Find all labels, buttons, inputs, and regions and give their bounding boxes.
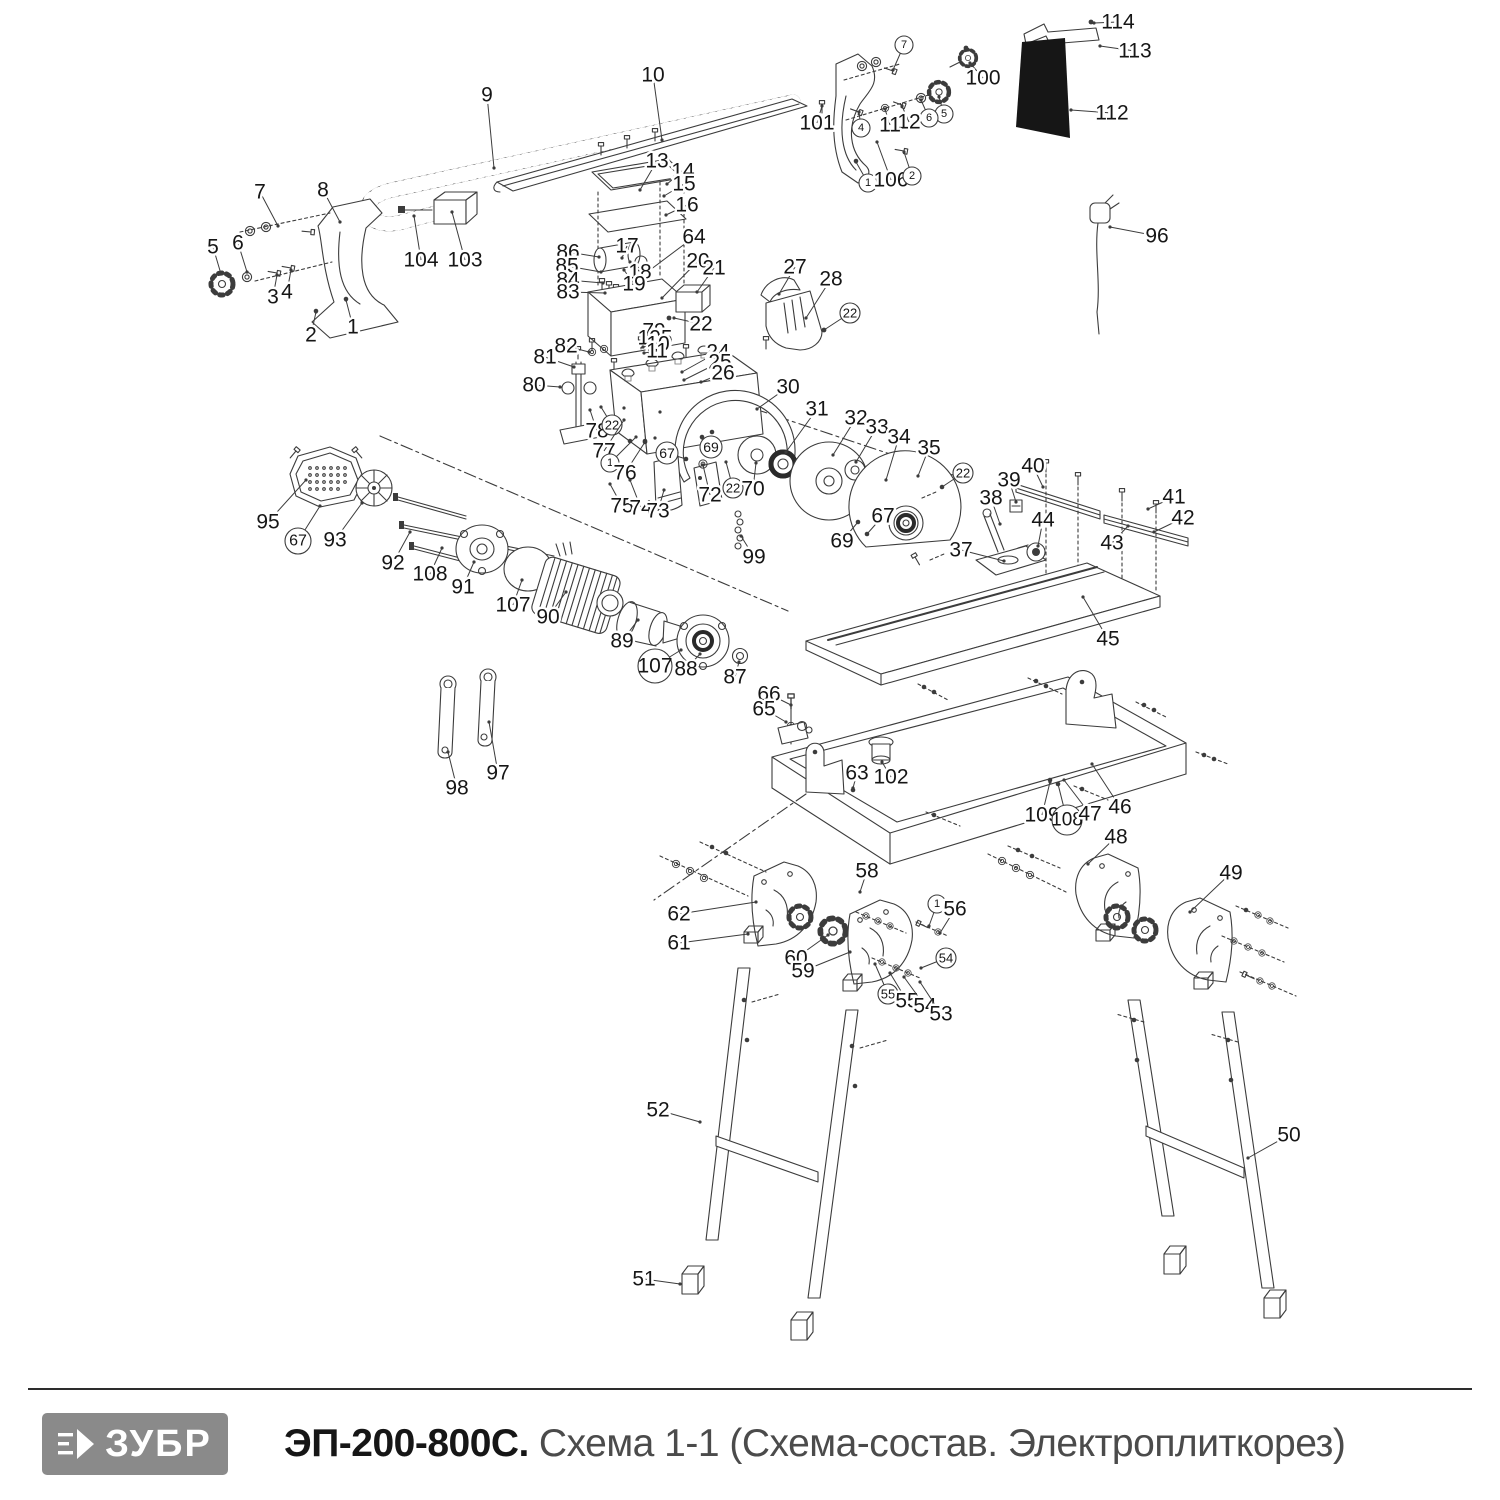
callout-92: 92: [381, 530, 411, 574]
svg-text:70: 70: [741, 478, 764, 501]
small-box-21: [676, 285, 710, 312]
callout-98: 98: [445, 750, 468, 799]
svg-text:69: 69: [703, 439, 719, 455]
switch-guard: [761, 278, 826, 350]
svg-text:1: 1: [347, 316, 359, 339]
svg-text:42: 42: [1171, 507, 1194, 530]
svg-text:81: 81: [533, 346, 556, 369]
footer-divider: [28, 1388, 1472, 1390]
callout-112: 112: [1069, 102, 1128, 125]
page-title: ЭП-200-800С.Схема 1-1 (Схема-состав. Эле…: [284, 1422, 1345, 1466]
svg-text:10: 10: [641, 64, 664, 87]
callout-80: 80: [522, 374, 561, 397]
svg-text:21: 21: [702, 257, 725, 280]
svg-text:46: 46: [1108, 796, 1131, 819]
svg-text:17: 17: [615, 235, 638, 258]
leg-pivot-brackets: [660, 842, 1296, 996]
drop-chain: [735, 511, 743, 549]
svg-text:87: 87: [723, 666, 746, 689]
callout-2: 2: [305, 310, 317, 346]
svg-text:43: 43: [1100, 532, 1123, 555]
svg-text:30: 30: [776, 376, 799, 399]
svg-text:65: 65: [752, 698, 775, 721]
svg-text:26: 26: [711, 362, 734, 385]
zubr-logo-icon: [58, 1427, 96, 1461]
svg-text:32: 32: [844, 407, 867, 430]
svg-text:89: 89: [610, 630, 633, 653]
svg-text:33: 33: [865, 416, 888, 439]
leg-frame-left: [706, 968, 888, 1298]
svg-text:108: 108: [412, 563, 447, 586]
svg-text:27: 27: [783, 256, 806, 279]
rubber-feet: [682, 1246, 1286, 1340]
schema-subtitle: Схема 1-1 (Схема-состав. Электроплиткоре…: [539, 1422, 1346, 1465]
callout-99: 99: [739, 534, 765, 568]
callout-82: 82: [554, 335, 590, 358]
svg-text:49: 49: [1219, 862, 1242, 885]
svg-text:31: 31: [805, 398, 828, 421]
callout-56: 56: [938, 898, 966, 935]
callout-5: 5: [207, 236, 222, 276]
callout-40: 40: [1021, 455, 1044, 489]
svg-text:47: 47: [1078, 803, 1101, 826]
svg-text:5: 5: [207, 236, 219, 259]
svg-text:28: 28: [819, 268, 842, 291]
callout-43: 43: [1100, 524, 1129, 554]
brand-name: ЗУБР: [105, 1425, 212, 1463]
callout-52: 52: [646, 1099, 701, 1124]
svg-text:1: 1: [607, 457, 613, 469]
svg-text:6: 6: [232, 232, 244, 255]
svg-text:107: 107: [637, 655, 672, 678]
lower-blade-guard: [849, 451, 961, 566]
callout-3: 3: [267, 273, 279, 308]
svg-text:73: 73: [646, 500, 669, 523]
callout-54-circled: 54: [919, 948, 956, 970]
bracket-hardware: [660, 842, 1296, 996]
svg-text:13: 13: [645, 150, 668, 173]
callout-30: 30: [755, 376, 799, 411]
svg-text:48: 48: [1104, 826, 1127, 849]
svg-text:19: 19: [622, 273, 645, 296]
svg-text:3: 3: [267, 286, 279, 309]
chassis-bracket-right: [1066, 671, 1116, 728]
callout-17: 17: [615, 235, 638, 260]
svg-text:7: 7: [254, 181, 266, 204]
svg-text:72: 72: [698, 484, 721, 507]
svg-text:106: 106: [873, 169, 908, 192]
svg-text:45: 45: [1096, 628, 1119, 651]
svg-text:11: 11: [646, 340, 668, 363]
chassis-tray: [772, 671, 1228, 864]
callout-44: 44: [1031, 509, 1055, 548]
svg-text:113: 113: [1118, 40, 1151, 63]
svg-text:35: 35: [917, 437, 940, 460]
knob-100: [950, 50, 976, 67]
callout-19: 19: [622, 268, 645, 295]
svg-text:67: 67: [871, 505, 894, 528]
callout-93: 93: [323, 501, 363, 551]
svg-text:9: 9: [481, 84, 493, 107]
callout-11: 11: [642, 340, 668, 363]
svg-text:62: 62: [667, 903, 690, 926]
callout-108: 108: [412, 546, 447, 585]
svg-text:95: 95: [256, 511, 279, 534]
svg-text:4: 4: [281, 281, 293, 304]
svg-text:63: 63: [845, 762, 868, 785]
callout-102: 102: [873, 760, 908, 788]
exploded-diagram: 9107856342110410313141516641718192021228…: [0, 0, 1500, 1388]
svg-text:1: 1: [865, 177, 871, 189]
svg-text:4: 4: [858, 122, 864, 134]
callout-69: 69: [830, 520, 859, 552]
svg-text:50: 50: [1277, 1124, 1300, 1147]
callout-106: 106: [873, 140, 908, 191]
svg-text:82: 82: [554, 335, 577, 358]
link-handles: [438, 669, 496, 758]
svg-text:2: 2: [305, 324, 317, 347]
svg-text:11: 11: [879, 114, 901, 137]
callout-9: 9: [481, 84, 495, 170]
svg-text:107: 107: [495, 594, 530, 617]
svg-text:34: 34: [887, 426, 911, 449]
svg-text:22: 22: [956, 466, 970, 481]
svg-text:15: 15: [672, 173, 695, 196]
svg-text:7: 7: [901, 39, 907, 51]
svg-text:76: 76: [613, 462, 636, 485]
svg-text:114: 114: [1101, 11, 1135, 34]
callout-88: 88: [674, 652, 701, 680]
callout-101: 101: [799, 104, 834, 134]
callout-95: 95: [256, 478, 307, 533]
svg-text:112: 112: [1095, 102, 1128, 125]
callout-22-circled: 22: [723, 460, 743, 498]
callout-62: 62: [667, 900, 757, 925]
svg-text:39: 39: [997, 469, 1020, 492]
svg-text:80: 80: [522, 374, 545, 397]
svg-text:22: 22: [689, 313, 712, 336]
leg-frame-right: [1116, 1000, 1274, 1288]
callout-4: 4: [281, 268, 293, 303]
power-plug: [1090, 195, 1119, 334]
callout-100: 100: [965, 61, 1000, 89]
callout-7-circled: 7: [891, 36, 913, 72]
zubr-logo: ЗУБР: [42, 1413, 228, 1475]
svg-text:69: 69: [830, 530, 853, 553]
callout-7: 7: [254, 181, 279, 228]
callout-61: 61: [667, 932, 749, 955]
svg-text:58: 58: [855, 860, 878, 883]
diagram-art: [211, 20, 1296, 1340]
drain-plug: [869, 737, 893, 764]
svg-text:61: 61: [667, 932, 690, 955]
svg-text:83: 83: [556, 281, 579, 304]
svg-text:102: 102: [873, 766, 908, 789]
svg-text:5: 5: [941, 108, 947, 120]
svg-text:44: 44: [1031, 509, 1055, 532]
left-bracket-assembly: [211, 199, 398, 338]
svg-text:2: 2: [909, 170, 915, 182]
callout-96: 96: [1108, 225, 1168, 248]
svg-text:6: 6: [926, 112, 932, 124]
svg-text:55: 55: [881, 987, 895, 1002]
svg-text:22: 22: [843, 306, 857, 321]
fan-cover: [288, 447, 364, 507]
callout-58: 58: [855, 860, 878, 894]
schematic-page: 9107856342110410313141516641718192021228…: [0, 0, 1500, 1500]
callout-69-circled: 69: [700, 436, 722, 458]
callout-42: 42: [1152, 507, 1194, 534]
svg-text:103: 103: [447, 249, 482, 272]
svg-text:1: 1: [934, 898, 940, 910]
callout-87: 87: [723, 660, 746, 688]
svg-text:99: 99: [742, 546, 765, 569]
footer: ЗУБР ЭП-200-800С.Схема 1-1 (Схема-состав…: [0, 1388, 1500, 1500]
svg-text:93: 93: [323, 529, 346, 552]
callout-113: 113: [1098, 40, 1151, 63]
svg-text:40: 40: [1021, 455, 1044, 478]
svg-text:98: 98: [445, 777, 468, 800]
svg-text:54: 54: [939, 951, 953, 966]
svg-text:88: 88: [674, 658, 697, 681]
svg-text:8: 8: [317, 179, 329, 202]
svg-text:97: 97: [486, 762, 509, 785]
svg-text:16: 16: [675, 194, 698, 217]
callout-76: 76: [613, 440, 646, 484]
svg-text:90: 90: [536, 606, 559, 629]
svg-text:52: 52: [646, 1099, 669, 1122]
callout-22-circled: 22: [822, 303, 860, 332]
svg-text:41: 41: [1162, 486, 1185, 509]
callout-65: 65: [752, 698, 787, 724]
svg-text:91: 91: [451, 576, 474, 599]
svg-text:92: 92: [381, 552, 404, 575]
callout-38: 38: [979, 487, 1002, 526]
callout-51: 51: [632, 1268, 681, 1291]
svg-text:53: 53: [929, 1003, 952, 1026]
callout-67-circled: 67: [285, 504, 322, 554]
svg-text:51: 51: [632, 1268, 655, 1291]
svg-text:37: 37: [949, 539, 972, 562]
svg-text:104: 104: [403, 249, 438, 272]
callout-48: 48: [1086, 826, 1127, 866]
svg-text:67: 67: [659, 445, 675, 461]
callout-50: 50: [1246, 1124, 1300, 1160]
svg-text:56: 56: [943, 898, 966, 921]
callout-114: 114: [1092, 11, 1135, 34]
callout-6: 6: [232, 232, 248, 274]
svg-text:64: 64: [682, 226, 706, 249]
model-number: ЭП-200-800С.: [284, 1422, 529, 1465]
svg-text:59: 59: [791, 960, 814, 983]
water-table: [806, 563, 1160, 685]
svg-text:96: 96: [1145, 225, 1168, 248]
svg-text:101: 101: [799, 112, 834, 135]
fan: [356, 470, 392, 506]
svg-text:100: 100: [965, 67, 1000, 90]
svg-text:22: 22: [726, 481, 740, 496]
bearing-plate: [456, 525, 508, 575]
svg-text:67: 67: [289, 533, 307, 550]
